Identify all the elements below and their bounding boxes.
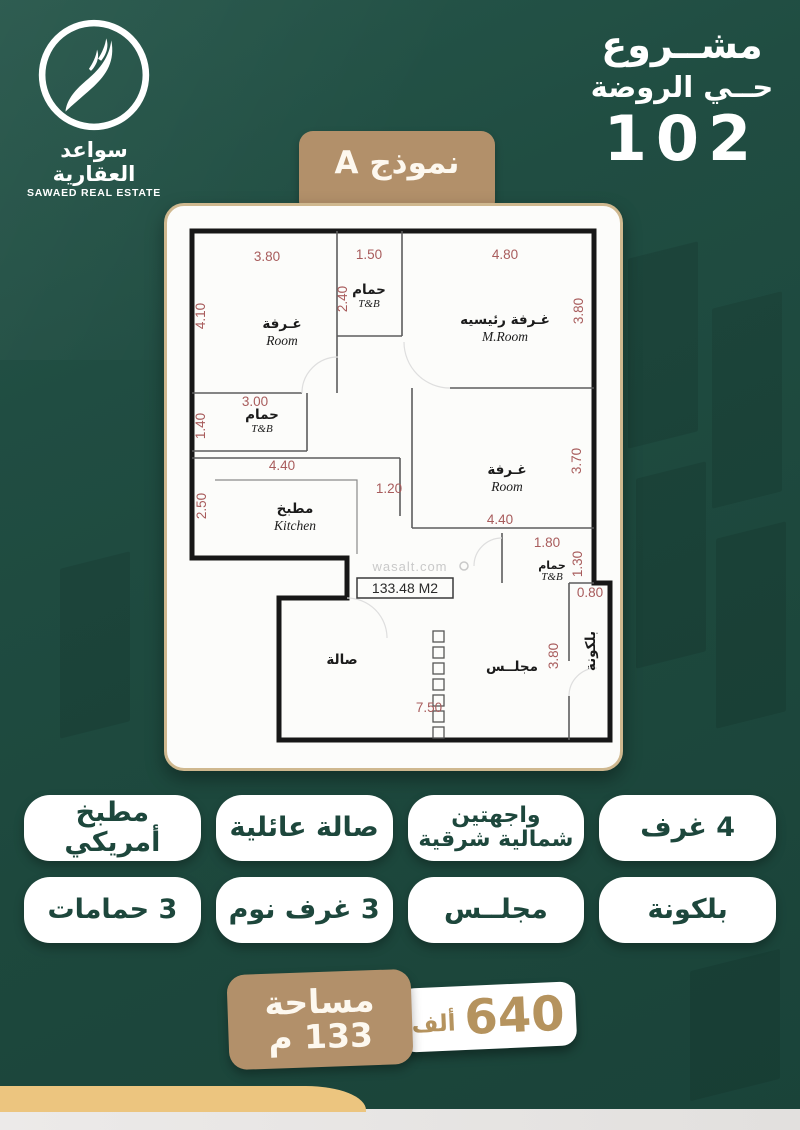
price-unit: ألف	[411, 1010, 456, 1038]
feature-pills: مطبخ أمريكي صالة عائلية واجهتين شمالية ش…	[0, 795, 800, 943]
dim-tb3-height: 1.30	[570, 551, 585, 577]
dim-balcony-width: 0.80	[577, 585, 603, 600]
background-window-shape	[690, 949, 780, 1101]
kitchen-label-ar: مطبخ	[277, 501, 314, 517]
total-area-value: 133.48 M2	[372, 580, 438, 596]
room1-label-en: Room	[265, 333, 298, 348]
feature-majlis: مجلــس	[408, 877, 585, 943]
background-window-shape	[712, 291, 782, 508]
dim-room2-height: 3.70	[569, 448, 584, 474]
room2-label-ar: غـرفة	[487, 462, 526, 478]
brand-name-english: SAWAED REAL ESTATE	[18, 187, 170, 199]
tb1-label-en: T&B	[358, 298, 380, 310]
room-labels: غـرفة Room حمام T&B غـرفة رئيسيه M.Room …	[245, 282, 599, 675]
dim-passage-width: 1.20	[376, 481, 402, 496]
feature-3-bedrooms: 3 غرف نوم	[216, 877, 393, 943]
bottom-gray-strip	[0, 1109, 800, 1130]
background-window-shape	[716, 521, 786, 728]
project-district: حــي الروضة	[582, 70, 782, 104]
brand-logo: سواعد العقارية SAWAED REAL ESTATE	[18, 16, 170, 199]
dim-room1-height: 4.10	[193, 303, 208, 329]
tb3-label-en: T&B	[541, 571, 563, 583]
project-title: مشــروع	[582, 26, 782, 66]
project-number: 102	[582, 108, 782, 170]
background-window-shape	[628, 241, 698, 448]
dim-tb1-height: 2.40	[335, 286, 350, 312]
dim-balcony-height: 3.80	[546, 643, 561, 669]
room1-label-ar: غـرفة	[262, 316, 301, 332]
background-window-shape	[60, 551, 130, 738]
watermark-pin-icon	[460, 562, 468, 570]
feature-family-hall: صالة عائلية	[216, 795, 393, 861]
feature-american-kitchen: مطبخ أمريكي	[24, 795, 201, 861]
majlis-label-ar: مجلــس	[486, 659, 538, 675]
feature-3-bathrooms: 3 حمامات	[24, 877, 201, 943]
feature-4-rooms: 4 غرف	[599, 795, 776, 861]
hall-label-ar: صالة	[326, 652, 357, 668]
dim-tb2-height: 1.40	[193, 413, 208, 439]
dim-kitchen-width: 4.40	[269, 458, 295, 473]
dim-room2-width: 4.40	[487, 512, 513, 527]
feature-balcony: بلكونة	[599, 877, 776, 943]
dim-hall-width: 7.50	[416, 700, 442, 715]
price-badge: 640 ألف	[399, 981, 578, 1053]
kitchen-counter-line	[215, 480, 357, 554]
tb1-label-ar: حمام	[352, 282, 386, 298]
kitchen-label-en: Kitchen	[273, 518, 316, 533]
mroom-label-en: M.Room	[481, 329, 528, 344]
dim-room1-width: 3.80	[254, 249, 280, 264]
floor-plan-drawing: wasalt.com 133.48 M2 3.80 1.50 4.80 2.40…	[167, 206, 620, 768]
tb2-label-en: T&B	[251, 423, 273, 435]
background-window-shape	[636, 461, 706, 668]
real-estate-poster: سواعد العقارية SAWAED REAL ESTATE مشــرو…	[0, 0, 800, 1130]
dim-kitchen-height: 2.50	[194, 493, 209, 519]
floor-plan-card: wasalt.com 133.48 M2 3.80 1.50 4.80 2.40…	[164, 203, 623, 771]
feature-two-facades: واجهتين شمالية شرقية	[408, 795, 585, 861]
project-header: مشــروع حــي الروضة 102	[582, 26, 782, 170]
tb2-label-ar: حمام	[245, 407, 279, 423]
area-value: 133 م	[268, 1018, 374, 1056]
brand-name-arabic: سواعد العقارية	[18, 138, 170, 186]
gold-accent-bar	[0, 1086, 366, 1112]
area-badge: مساحة 133 م	[226, 969, 413, 1070]
mroom-label-ar: غـرفة رئيسيه	[460, 312, 550, 328]
dim-mroom-width: 4.80	[492, 247, 518, 262]
divider-columns	[433, 631, 444, 738]
dim-tb1-width: 1.50	[356, 247, 382, 262]
balcony-label-ar: بلكونة	[583, 631, 599, 671]
dim-tb3-width: 1.80	[534, 535, 560, 550]
watermark: wasalt.com	[371, 559, 447, 574]
price-number: 640	[463, 990, 565, 1042]
falcon-swoosh-icon	[35, 16, 153, 134]
dim-mroom-height: 3.80	[571, 298, 586, 324]
room2-label-en: Room	[490, 479, 523, 494]
